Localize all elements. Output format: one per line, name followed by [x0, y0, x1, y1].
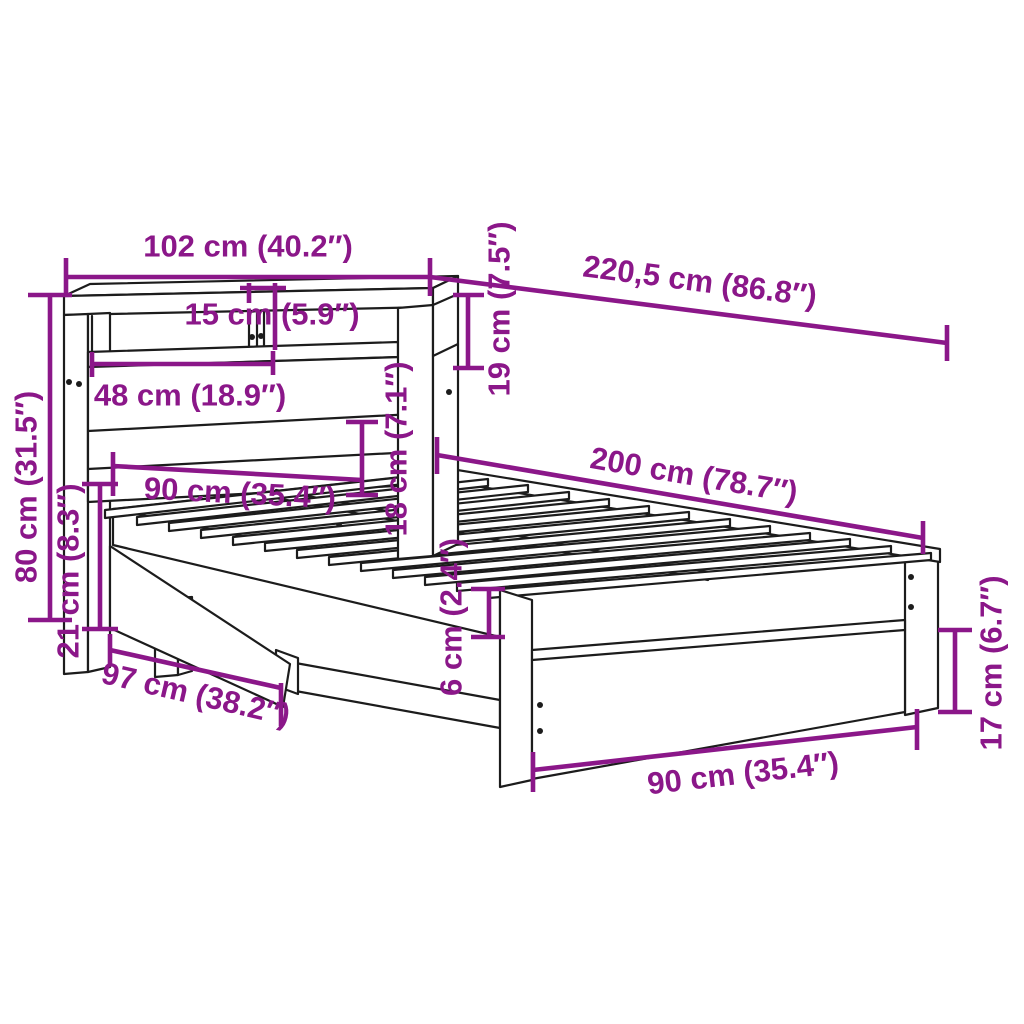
- bed-dimension-diagram: 102 cm (40.2″) 220,5 cm (86.8″) 15 cm (5…: [0, 0, 1024, 1024]
- label-total-length: 220,5 cm (86.8″): [581, 248, 819, 313]
- label-shelf-height: 19 cm (7.5″): [482, 221, 517, 396]
- label-compartment-width: 48 cm (18.9″): [94, 378, 286, 413]
- label-headboard-width: 102 cm (40.2″): [143, 229, 353, 264]
- label-rail-edge: 6 cm (2.4″): [434, 538, 469, 696]
- footboard: [532, 620, 905, 779]
- diagram-canvas: 102 cm (40.2″) 220,5 cm (86.8″) 15 cm (5…: [0, 0, 1024, 1024]
- label-headboard-leg-height: 21 cm (8.3″): [51, 483, 86, 658]
- label-shelf-divider-gap: 15 cm (5.9″): [184, 297, 359, 332]
- foot-leg-near: [500, 590, 532, 787]
- lower-stretcher: [290, 662, 500, 728]
- foot-leg-far: [905, 556, 938, 715]
- label-frame-height: 18 cm (7.1″): [379, 361, 414, 536]
- dim-foot-leg-height: [938, 630, 972, 712]
- label-foot-leg-height: 17 cm (6.7″): [974, 575, 1009, 750]
- label-headboard-height: 80 cm (31.5″): [9, 391, 44, 583]
